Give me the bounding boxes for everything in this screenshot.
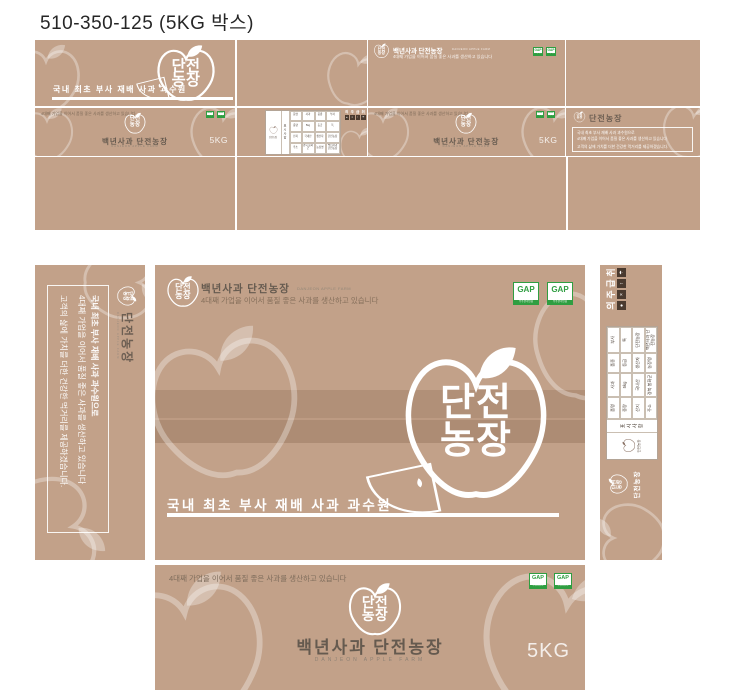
heading-text-block: 단전농장 DANJEON APPLE FARM [116,312,136,364]
gap-badges: GAP 우수관리인증 GAP 우수관리인증 [206,111,225,118]
main-front-panel: 단전 농장 백년사과 단전농장 DANJEON APPLE FARM 4대째 가… [155,265,585,560]
spec-table-cell: 산지 [290,132,302,143]
page-title: 510-350-125 (5KG 박스) [40,8,254,35]
left-side-panel: 단전 농장 단전농장 DANJEON APPLE FARM 국내 최초 부사 재… [35,265,145,560]
gap-badges: GAP 우수관리인증 GAP 우수관리인증 [529,573,572,589]
side-panel-spec: 단전농장표시사항품명사과품종부사중량5kg등급특산지국내산생산자단전농장주소경북… [237,108,368,156]
flap-panel-plain [568,157,701,230]
left-panel-rotated-content: 단전 농장 단전농장 DANJEON APPLE FARM 국내 최초 부사 재… [35,265,145,560]
this-side-up-icon: ↑ [356,115,361,120]
spec-table-cell: 경북 봉화군 [302,143,315,154]
header-farm-logo: 단전 농장 [165,275,201,309]
message-line: 국내 최초 부사 재배 사과 과수원으로 [88,295,101,523]
spec-table-cell: 사과 [302,111,315,122]
spec-table-brand-cell: 단전농장 [266,111,282,154]
spec-table-cell: 품종 [315,111,326,122]
bottom-front-panel: 4대째 가업을 이어서 품질 좋은 사과를 생산하고 있습니다 GAP 우수관리… [155,565,585,690]
farm-logo: 단전 농장 [573,111,586,123]
right-side-panel: 단전 농장 단전농장 단전농장표시사항품명사과품종부사중량5kg등급특산지국내산… [600,265,662,560]
packaging-dieline-sheet: 510-350-125 (5KG 박스) 국내 최초 부사 재배 사과 과수원 … [0,0,737,700]
farm-name: 단전농장 [637,440,642,453]
keep-dry-icon: ☂ [617,268,626,277]
farm-name: 단전농장 [119,312,136,364]
brand-name: 백년사과 단전농장 [155,633,585,658]
brand-name-en: DANJEON APPLE FARM [452,48,490,51]
farm-logo: 단전 농장 [116,285,137,307]
spec-table-cell: 생산자 [632,353,645,373]
spec-table-cell: 사과 [607,373,620,397]
product-spec-table: 단전농장표시사항품명사과품종부사중량5kg등급특산지국내산생산자단전농장주소경북… [265,110,341,155]
spec-table-cell: 품명 [290,111,302,122]
spec-table-cell: 중량 [620,397,633,419]
message-line: 4대째 가업을 이어서 품질 좋은 사과를 생산하고 있습니다 [75,295,88,523]
spec-table-cell: 단전농장 [326,132,340,143]
brand-name-en: DANJEON APPLE FARM [368,145,565,148]
spec-table-cell: 부사 [607,327,620,353]
handle-care-item: 주 × [350,111,355,120]
gap-certification-badge: GAP 우수관리인증 [547,111,555,118]
spec-table-cell: 5kg [302,121,315,132]
handle-care-item: 주 × [607,290,626,299]
gap-certification-badge: GAP 우수관리인증 [547,282,573,305]
panel-heading: 단전 농장 단전농장 DANJEON APPLE FARM [116,285,137,364]
brand-name-en: DANJEON APPLE FARM [35,145,235,148]
right-panel-rotated-content: 단전 농장 단전농장 단전농장표시사항품명사과품종부사중량5kg등급특산지국내산… [600,265,662,560]
spec-table-cell: 경북 봉화군 [645,373,658,397]
flap-panel-brand: 단전 농장 백년사과 단전농장 DANJEON APPLE FARM 4대째 가… [368,40,565,106]
gap-certification-badge: GAP 우수관리인증 [529,573,547,589]
tagline-text: 4대째 가업을 이어서 품질 좋은 사과를 생산하고 있습니다 [201,295,378,306]
spec-table-grid: 품명사과품종부사중량5kg등급특산지국내산생산자단전농장주소경북 봉화군농장명백… [290,111,340,154]
apple-logo-icon [269,126,278,134]
spec-table-cell: 농장명 [645,353,658,373]
do-not-drop-icon: ● [345,115,350,120]
gap-certification-badge: GAP 우수관리인증 [546,47,556,56]
spec-table-cell: 부사 [326,111,340,122]
brand-name-en: DANJEON APPLE FARM [116,312,119,364]
farm-name: 단전농장 [269,135,277,139]
spec-table-cell: 중량 [290,121,302,132]
spec-table-title: 표시사항 [282,111,290,154]
brand-name-en: DANJEON APPLE FARM [297,286,351,291]
weight-label: 5KG [209,135,228,145]
side-panel-front-small: 4대째 가업을 이어서 품질 좋은 사과를 생산하고 있습니다 GAP 우수관리… [368,108,565,156]
spec-table-cell: 특 [326,121,340,132]
gap-badges: GAP 우수관리인증 GAP 우수관리인증 [533,47,556,56]
spec-table-cell: 백년사과 단전농장 [645,327,658,353]
apple-watermark-icon [600,498,662,560]
handle-care-item: 취 ☂ [361,111,366,120]
spec-table-grid: 품명사과품종부사중량5kg등급특산지국내산생산자단전농장주소경북 봉화군농장명백… [607,327,657,419]
flap-panel-plain [35,157,235,230]
spec-table-cell: 국내산 [302,132,315,143]
tagline-text: 4대째 가업을 이어서 품질 좋은 사과를 생산하고 있습니다 [169,573,346,584]
handle-care-mark: 취 ☂ 급 ↑ 주 × 의 ● [345,111,366,120]
handle-care-item: 의 ● [607,301,626,310]
spec-table-cell: 단전농장 [632,327,645,353]
handle-care-item: 의 ● [345,111,350,120]
headline-text: 국내 최초 부사 재배 사과 과수원 [167,494,392,514]
spec-table-cell: 농장명 [315,143,326,154]
spec-table-cell: 품종 [607,353,620,373]
farm-mark: 단전 농장 단전농장 [608,462,641,507]
farm-name: 단전농장 [631,471,641,499]
apple-watermark-icon [337,126,368,156]
message-line: 4대째 가업을 이어서 품질 좋은 사과를 생산하고 있습니다 [577,136,688,142]
spec-table-cell: 백년사과 단전농장 [326,143,340,154]
farm-logo: 단전 농장 [373,43,390,59]
do-not-drop-icon: ● [617,301,626,310]
apple-watermark-icon [315,41,367,106]
spec-table-cell: 특 [620,327,633,353]
flap-panel-plain [237,157,567,230]
spec-table-cell: 등급 [315,121,326,132]
gap-certification-badge: GAP 우수관리인증 [533,47,543,56]
spec-table-cell: 5kg [620,373,633,397]
gap-certification-badge: GAP 우수관리인증 [217,111,225,118]
handle-care-mark: 취 ☂ 급 ↑ 주 × 의 ● [607,268,626,310]
product-spec-table: 단전농장표시사항품명사과품종부사중량5kg등급특산지국내산생산자단전농장주소경북… [606,326,658,460]
farm-logo: 단전 농장 [345,581,405,639]
spec-table-cell: 생산자 [315,132,326,143]
flap-panel-headline: 국내 최초 부사 재배 사과 과수원 단전 농장 [35,40,235,106]
gap-certification-badge: GAP 우수관리인증 [536,111,544,118]
handle-care-item: 급 ↑ [607,279,626,288]
spec-table-cell: 산지 [632,397,645,419]
spec-table-title: 표시사항 [607,419,657,432]
dieline-top-strip: 국내 최초 부사 재배 사과 과수원 단전 농장 단전 농장 백년사과 단전농장… [35,40,700,230]
tagline-text: 4대째 가업을 이어서 품질 좋은 사과를 생산하고 있습니다 [41,111,136,117]
weight-label: 5KG [527,640,570,663]
side-panel-front-small: 4대째 가업을 이어서 품질 좋은 사과를 생산하고 있습니다 GAP 우수관리… [35,108,235,156]
spec-table-cell: 등급 [620,353,633,373]
brand-name-en: DANJEON APPLE FARM [155,657,585,663]
side-panel-message: 단전 농장 단전농장 국내 최초 부사 재배 사과 과수원으로 4대째 가업을 … [566,108,700,156]
gap-certification-badge: GAP 우수관리인증 [206,111,214,118]
handle-care-item: 취 ☂ [607,268,626,277]
fragile-icon: × [617,290,626,299]
spec-table-cell: 주소 [290,143,302,154]
flap-panel-plain [237,40,368,106]
keep-dry-icon: ☂ [361,115,366,120]
farm-logo: 단전 농장 [608,474,629,496]
message-line: 고객의 삶에 가치를 더한 건강한 먹거리를 제공하겠습니다. [577,144,688,150]
message-box: 국내 최초 부사 재배 사과 과수원으로 4대째 가업을 이어서 품질 좋은 사… [572,127,693,152]
headline-underline [167,513,559,517]
farm-logo: 단전 농장 [454,112,478,135]
message-box: 국내 최초 부사 재배 사과 과수원으로 4대째 가업을 이어서 품질 좋은 사… [47,285,109,533]
gap-badges: GAP 우수관리인증 GAP 우수관리인증 [513,282,573,305]
gap-badges: GAP 우수관리인증 GAP 우수관리인증 [536,111,555,118]
spec-table-cell: 품명 [607,397,620,419]
weight-label: 5KG [539,135,558,145]
farm-logo: 단전 농장 [123,112,147,135]
message-line: 고객의 삶에 가치를 더한 건강한 먹거리를 제공하겠습니다. [57,295,70,523]
this-side-up-icon: ↑ [617,279,626,288]
spec-table-cell: 주소 [645,397,658,419]
gap-certification-badge: GAP 우수관리인증 [513,282,539,305]
handle-care-item: 급 ↑ [356,111,361,120]
spec-table-cell: 국내산 [632,373,645,397]
tagline-text: 4대째 가업을 이어서 품질 좋은 사과를 생산하고 있습니다 [393,54,492,60]
farm-name: 단전농장 [589,113,622,124]
fragile-icon: × [350,115,355,120]
apple-logo-icon [622,439,636,454]
flap-panel-plain [566,40,700,106]
spec-table-brand-cell: 단전농장 [607,432,657,459]
apple-watermark-icon [155,311,323,501]
gap-certification-badge: GAP 우수관리인증 [554,573,572,589]
